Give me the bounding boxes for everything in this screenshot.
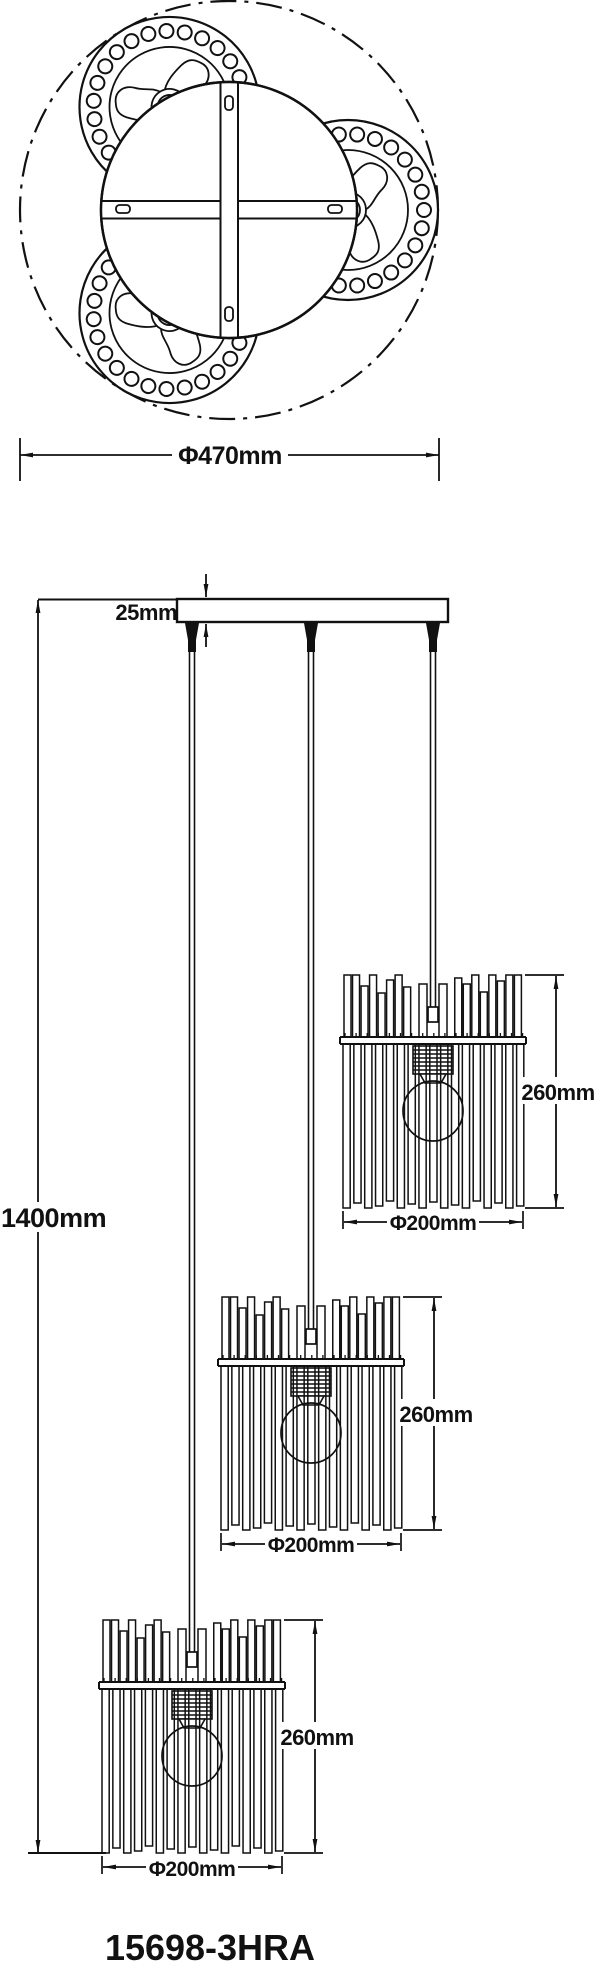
- ceiling-plate-top-view: [101, 82, 357, 338]
- screw-slot: [225, 96, 233, 110]
- light-bulb: [281, 1403, 341, 1463]
- cord-grip: [304, 623, 318, 652]
- fixture-diameter-dimension-label: Φ470mm: [178, 442, 282, 470]
- cross-arm-vertical: [221, 82, 239, 338]
- lamp-2-height-dimension-label: 260mm: [399, 1402, 472, 1427]
- top-view-drawing: [20, 0, 438, 436]
- lamp-3-height-dimension-label: 260mm: [280, 1725, 353, 1750]
- cord-grip: [426, 623, 440, 652]
- lamp-shade-front-view: [340, 975, 526, 1208]
- ceiling-canopy: [177, 599, 448, 622]
- cord-holder: [187, 1652, 197, 1667]
- lamp-1-diameter-dimension-label: Φ200mm: [390, 1212, 477, 1235]
- cord-holder: [428, 1007, 438, 1022]
- front-view-drawing: [99, 623, 564, 1874]
- total-drop-dimension-label: 1400mm: [1, 1203, 106, 1233]
- light-bulb: [162, 1726, 222, 1786]
- technical-drawing: Φ470mm 25mm 1400mm 260mm Φ200mm 260mm Φ2…: [0, 0, 600, 1971]
- screw-slot: [225, 307, 233, 321]
- lamp-2-diameter-dimension-label: Φ200mm: [268, 1534, 355, 1557]
- light-bulb: [403, 1081, 463, 1141]
- cord-holder: [306, 1329, 316, 1344]
- screw-slot: [328, 205, 342, 213]
- canopy-height-dimension-label: 25mm: [115, 600, 177, 625]
- drawing-page: Φ470mm 25mm 1400mm 260mm Φ200mm 260mm Φ2…: [0, 0, 600, 1971]
- lamp-3-diameter-dimension-label: Φ200mm: [149, 1858, 236, 1881]
- screw-slot: [116, 205, 130, 213]
- cord-grip: [185, 623, 199, 652]
- lamp-1-height-dimension-label: 260mm: [521, 1080, 594, 1105]
- lamp-shade-front-view: [218, 1297, 404, 1530]
- model-number: 15698-3HRA: [105, 1927, 315, 1968]
- lamp-shade-front-view: [99, 1620, 285, 1853]
